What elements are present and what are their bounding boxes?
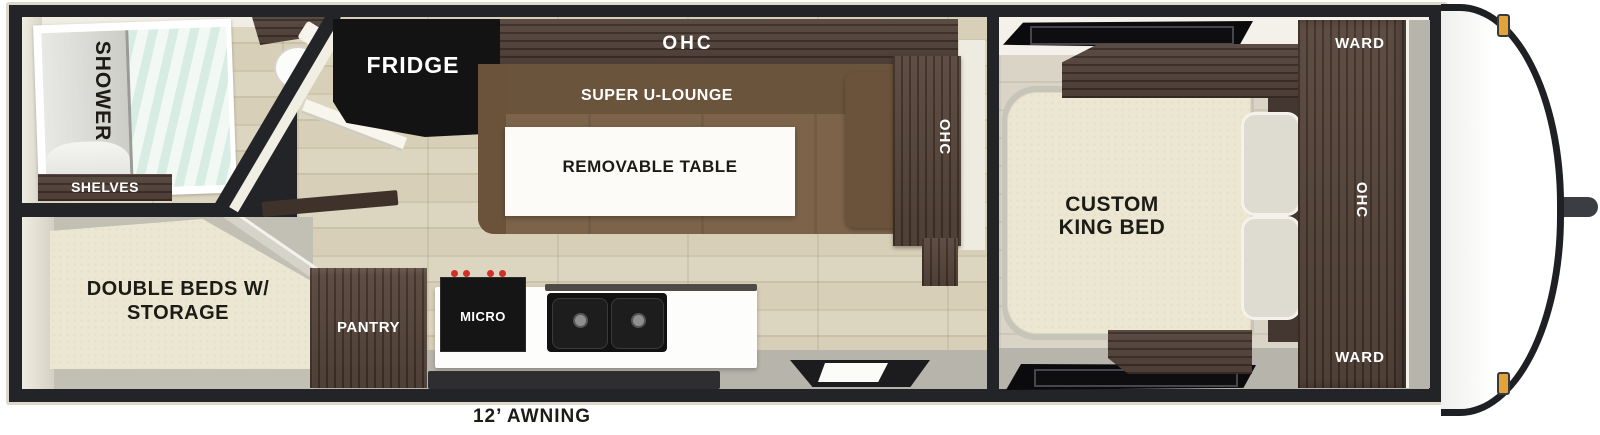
- marker-light-bottom: [1497, 372, 1510, 395]
- overhead-cabinet-bedroom-top: [1062, 44, 1302, 98]
- bedroom-wall-face-right: [1406, 20, 1430, 388]
- double-beds-label-line2: STORAGE: [58, 303, 298, 324]
- king-bed-label-line1: CUSTOM: [1032, 194, 1192, 216]
- shower-label: SHOWER: [89, 6, 113, 176]
- bath-beds-wall: [9, 203, 297, 217]
- burner-knob: [487, 270, 494, 277]
- counter-back-edge: [545, 284, 757, 291]
- ward-top-label: WARD: [1320, 36, 1400, 52]
- fridge: [333, 19, 500, 137]
- awning-label: 12’ AWNING: [407, 407, 657, 427]
- sink-drain: [573, 313, 588, 328]
- pillow: [1241, 216, 1301, 320]
- rear-beds-wall-left: [22, 217, 54, 389]
- lounge-end-wall-face: [959, 40, 985, 250]
- sink-drain: [631, 313, 646, 328]
- shelves-label: SHELVES: [71, 180, 139, 195]
- u-lounge-arm-left: [478, 64, 506, 234]
- roof-vent-top-frame: [1030, 26, 1234, 45]
- front-cap: [1441, 4, 1564, 416]
- burner-knob: [451, 270, 458, 277]
- shower-glass-door: [125, 27, 231, 188]
- awning-rail: [428, 371, 720, 389]
- shelves: SHELVES: [38, 174, 172, 201]
- fridge-label: FRIDGE: [353, 53, 473, 77]
- marker-light-top: [1497, 14, 1510, 37]
- floorplan-canvas: SHELVES SHOWER DOUBLE BEDS W/ STORAGE OH…: [0, 0, 1600, 435]
- removable-table-label: REMOVABLE TABLE: [525, 158, 775, 176]
- ohc-galley-label: OHC: [648, 34, 728, 54]
- overhead-cabinet-bedroom-bottom: [1108, 330, 1252, 374]
- cabinet-end-piece: [922, 238, 958, 286]
- ward-bottom-label: WARD: [1320, 350, 1400, 366]
- ohc-lounge-end-label: OHC: [934, 107, 952, 167]
- shower-stall: [33, 19, 237, 200]
- ohc-bedroom-label: OHC: [1351, 170, 1369, 230]
- u-lounge-label: SUPER U-LOUNGE: [577, 88, 737, 105]
- pillow: [1241, 112, 1301, 216]
- king-bed-label-line2: KING BED: [1032, 217, 1192, 239]
- burner-knob: [463, 270, 470, 277]
- micro-label: MICRO: [447, 310, 519, 324]
- double-beds-label-line1: DOUBLE BEDS W/: [58, 279, 298, 300]
- burner-knob: [499, 270, 506, 277]
- entry-step-tread: [818, 363, 888, 382]
- pantry-label: PANTRY: [315, 320, 422, 336]
